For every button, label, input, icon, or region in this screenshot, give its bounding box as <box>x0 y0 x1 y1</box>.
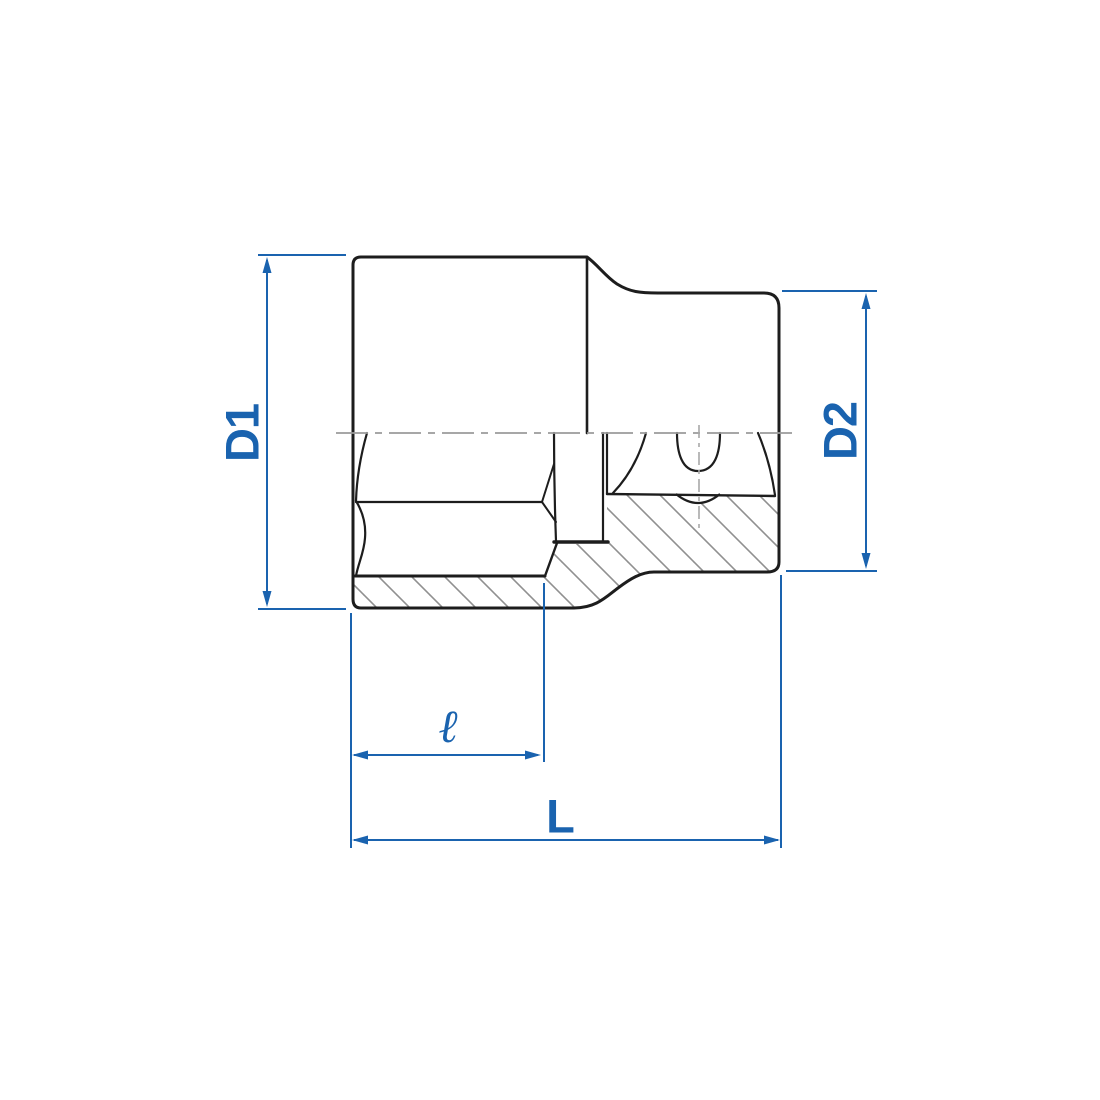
d2-label: D2 <box>814 402 867 460</box>
drawing-canvas: D1 D2 ℓ L <box>0 0 1100 1100</box>
d1-label: D1 <box>216 404 269 462</box>
background <box>0 0 1100 1100</box>
socket-technical-drawing: D1 D2 ℓ L <box>0 0 1100 1100</box>
l-small-label: ℓ <box>438 699 458 753</box>
l-total-label: L <box>546 790 574 843</box>
